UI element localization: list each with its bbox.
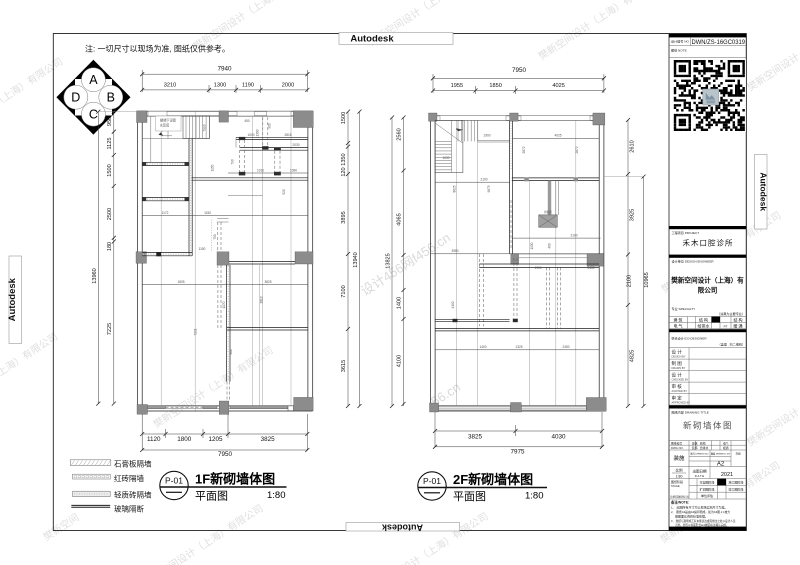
svg-text:1900: 1900	[483, 134, 490, 138]
svg-text:1900: 1900	[534, 266, 541, 270]
svg-text:设计单位 DESIGN ENGINEER: 设计单位 DESIGN ENGINEER	[672, 259, 715, 264]
svg-text:做图面比例的标准依据。: 做图面比例的标准依据。	[675, 514, 708, 519]
svg-text:2、 图纸A3是由A2缩印而成。如为A3图,1:1放大: 2、 图纸A3是由A2缩印而成。如为A3图,1:1放大	[671, 510, 730, 514]
svg-text:设计编号 NO: 设计编号 NO	[671, 39, 689, 44]
svg-text:AUDITED BY: AUDITED BY	[672, 389, 688, 393]
svg-text:1125: 1125	[107, 137, 113, 149]
svg-text:DESIGN BY: DESIGN BY	[672, 355, 686, 359]
svg-text:950: 950	[107, 117, 113, 126]
svg-text:联合设计/CO-DESIGNER: 联合设计/CO-DESIGNER	[672, 336, 708, 341]
svg-text:出图日期: 出图日期	[693, 469, 707, 474]
svg-text:180: 180	[107, 242, 113, 251]
svg-text:1955: 1955	[451, 83, 463, 89]
svg-text:4025: 4025	[552, 83, 564, 89]
svg-text:给排水: 给排水	[700, 446, 709, 450]
svg-text:1205: 1205	[208, 436, 223, 443]
svg-text:1:80: 1:80	[267, 490, 286, 501]
svg-text:1500: 1500	[341, 112, 347, 124]
svg-text:2100: 2100	[570, 233, 577, 237]
svg-text:A2: A2	[717, 461, 725, 467]
svg-text:DRAWN BY: DRAWN BY	[672, 366, 686, 370]
svg-text:13940: 13940	[353, 252, 359, 268]
svg-text:7221: 7221	[194, 328, 198, 335]
svg-text:1805: 1805	[177, 280, 184, 284]
svg-text:2021: 2021	[721, 472, 733, 478]
svg-text:装施: 装施	[673, 454, 685, 462]
svg-text:DWN/ZS-16GC0319: DWN/ZS-16GC0319	[692, 39, 746, 46]
svg-text:1130: 1130	[530, 242, 534, 249]
svg-text:1150: 1150	[204, 211, 211, 215]
svg-text:电 气: 电 气	[673, 322, 682, 328]
svg-text:红砖隔墙: 红砖隔墙	[114, 473, 144, 483]
svg-text:图纸 NOTE: 图纸 NOTE	[671, 48, 687, 53]
svg-text:1150: 1150	[199, 247, 206, 251]
svg-text:新砌墙体图: 新砌墙体图	[683, 421, 733, 431]
svg-text:限公司: 限公司	[698, 286, 718, 295]
svg-text:轻质砖隔墙: 轻质砖隔墙	[114, 489, 152, 499]
svg-text:CHECKED BY: CHECKED BY	[672, 378, 689, 382]
svg-text:B: B	[107, 91, 115, 105]
svg-text:Autodesk: Autodesk	[381, 523, 423, 533]
svg-text:1190: 1190	[242, 83, 254, 89]
svg-text:方案图阶段: 方案图阶段	[699, 480, 714, 485]
svg-text:比例: 比例	[676, 468, 684, 473]
svg-text:设 计: 设 计	[672, 372, 683, 379]
svg-text:2560: 2560	[397, 128, 403, 140]
svg-text:1:80: 1:80	[676, 475, 683, 479]
svg-text:960: 960	[229, 349, 233, 355]
svg-text:Autodesk: Autodesk	[7, 277, 18, 321]
svg-text:比例(见图内标注): 比例(见图内标注)	[671, 495, 690, 499]
svg-text:水泵房: 水泵房	[160, 123, 170, 128]
svg-text:1400: 1400	[397, 297, 403, 309]
svg-text:单位评估: 单位评估	[701, 493, 713, 498]
svg-text:2450: 2450	[587, 266, 594, 270]
svg-text:7950: 7950	[218, 451, 233, 458]
svg-text:1:80: 1:80	[525, 491, 544, 502]
svg-text:900: 900	[268, 123, 272, 129]
svg-text:P-01: P-01	[165, 476, 183, 486]
svg-text:4025: 4025	[554, 134, 561, 138]
svg-text:STAGE: STAGE	[671, 484, 680, 488]
svg-text:DWG NO.: DWG NO.	[671, 446, 684, 450]
svg-text:3925: 3925	[630, 209, 636, 221]
svg-text:暖通: 暖通	[723, 446, 729, 450]
svg-text:1300: 1300	[214, 83, 226, 89]
svg-text:玻璃隔断: 玻璃隔断	[114, 504, 144, 514]
svg-text:2030: 2030	[292, 143, 299, 147]
svg-text:7975: 7975	[510, 449, 525, 456]
svg-text:2000: 2000	[282, 83, 294, 89]
svg-text:D: D	[71, 91, 80, 105]
svg-text:2610: 2610	[630, 140, 636, 152]
svg-text:7100: 7100	[341, 285, 347, 297]
svg-text:7950: 7950	[512, 67, 527, 74]
svg-text:4065: 4065	[397, 213, 403, 225]
svg-text:C: C	[89, 108, 98, 122]
svg-text:13825: 13825	[385, 253, 391, 269]
svg-text:750: 750	[213, 234, 217, 240]
svg-text:暖 通: 暖 通	[733, 322, 742, 328]
svg-text:2500: 2500	[107, 208, 113, 220]
svg-text:1010: 1010	[257, 168, 264, 172]
svg-text:3825: 3825	[264, 280, 271, 284]
svg-text:备注/NOTE:: 备注/NOTE:	[670, 500, 689, 505]
svg-text:樊新空间设计（上海）有: 樊新空间设计（上海）有	[671, 276, 744, 285]
svg-text:790: 790	[231, 159, 235, 165]
svg-text:1170: 1170	[222, 301, 226, 308]
svg-text:审 核: 审 核	[672, 383, 683, 390]
svg-text:2450: 2450	[562, 345, 569, 349]
svg-text:施工图阶段: 施工图阶段	[728, 480, 743, 485]
svg-text:（涂黑为主要专业）: （涂黑为主要专业）	[717, 311, 745, 316]
svg-text:9675: 9675	[487, 185, 491, 192]
svg-text:400: 400	[548, 243, 552, 249]
svg-text:1172: 1172	[162, 211, 169, 215]
svg-text:7993: 7993	[203, 124, 207, 131]
svg-text:3825: 3825	[261, 436, 276, 443]
svg-text:审 定: 审 定	[672, 395, 683, 402]
svg-text:1325: 1325	[515, 345, 522, 349]
svg-text:8625: 8625	[453, 185, 457, 192]
svg-text:2818: 2818	[284, 133, 291, 137]
svg-text:制 图: 制 图	[672, 360, 683, 367]
svg-text:2100: 2100	[627, 275, 633, 287]
svg-text:3210: 3210	[164, 83, 176, 89]
svg-text:1500: 1500	[107, 164, 113, 176]
svg-text:楼梯下设置: 楼梯下设置	[160, 118, 176, 123]
svg-text:工程项目 PROJECT: 工程项目 PROJECT	[672, 230, 700, 235]
svg-text:450: 450	[244, 119, 250, 123]
svg-text:1800: 1800	[177, 436, 192, 443]
svg-text:为准。并形以书面形式and图面标注确认完成。: 为准。并形以书面形式and图面标注确认完成。	[675, 523, 729, 527]
svg-text:3813: 3813	[260, 296, 264, 303]
svg-text:图纸阶段: 图纸阶段	[671, 479, 683, 484]
svg-text:装饰: 装饰	[692, 446, 698, 450]
svg-text:1400: 1400	[479, 345, 486, 349]
svg-text:设 计: 设 计	[672, 349, 683, 356]
svg-text:3895: 3895	[341, 211, 347, 223]
svg-text:10965: 10965	[644, 272, 650, 288]
svg-text:3825: 3825	[468, 434, 483, 441]
svg-text:1150: 1150	[211, 164, 215, 171]
svg-text:1050: 1050	[442, 156, 449, 160]
svg-text:平面图: 平面图	[195, 490, 228, 503]
svg-text:电气: 电气	[723, 441, 729, 445]
svg-text:建筑: 建筑	[692, 441, 698, 445]
svg-text:给排水: 给排水	[698, 322, 710, 328]
svg-text:4030: 4030	[551, 434, 566, 441]
svg-text:建 筑: 建 筑	[673, 316, 682, 322]
svg-text:13960: 13960	[92, 268, 98, 284]
svg-text:3980: 3980	[451, 249, 458, 253]
svg-text:1120: 1120	[147, 436, 161, 443]
svg-text:7940: 7940	[217, 66, 232, 73]
svg-text:1850: 1850	[489, 83, 501, 89]
svg-text:平面图: 平面图	[453, 490, 486, 503]
svg-text:结 构: 结 构	[733, 316, 742, 322]
svg-text:1、 此图所有尺寸均以现场实测尺寸为准。: 1、 此图所有尺寸均以现场实测尺寸为准。	[671, 505, 728, 510]
svg-text:结 构: 结 构	[699, 316, 708, 322]
svg-text:日期: 日期	[735, 452, 741, 456]
svg-text:注: 一切尺寸以现场为准, 图纸仅供参考。: 注: 一切尺寸以现场为准, 图纸仅供参考。	[85, 44, 230, 54]
svg-text:扩初图阶段: 扩初图阶段	[699, 486, 714, 491]
svg-text:2872: 2872	[522, 146, 526, 153]
svg-text:APPROVED BY: APPROVED BY	[672, 401, 691, 405]
svg-text:PT: PT	[724, 324, 728, 328]
svg-text:结构: 结构	[700, 441, 706, 445]
svg-text:1000: 1000	[247, 133, 254, 137]
svg-text:3615: 3615	[341, 360, 347, 372]
svg-text:P-01: P-01	[423, 476, 441, 486]
svg-text:3、 图纸与现场施工有未能表达或需修改之处以设计人员: 3、 图纸与现场施工有未能表达或需修改之处以设计人员	[671, 519, 736, 523]
svg-text:图纸内容 DRAWING TITLE: 图纸内容 DRAWING TITLE	[672, 410, 709, 415]
svg-text:7225: 7225	[107, 323, 113, 335]
svg-text:（盖章 . 扫二维码）: （盖章 . 扫二维码）	[718, 342, 745, 347]
svg-text:1F新砌墙体图: 1F新砌墙体图	[195, 472, 275, 487]
svg-text:专业 SPECIALTY: 专业 SPECIALTY	[672, 306, 696, 311]
svg-text:1300: 1300	[256, 129, 260, 136]
svg-text:4825: 4825	[630, 350, 636, 362]
svg-text:2F新砌墙体图: 2F新砌墙体图	[453, 472, 533, 487]
svg-text:石膏板隔墙: 石膏板隔墙	[114, 458, 152, 468]
svg-text:禾木口腔诊所: 禾木口腔诊所	[683, 238, 734, 248]
svg-text:D A T E: D A T E	[695, 474, 705, 478]
svg-text:120 1350: 120 1350	[341, 153, 347, 176]
svg-text:A: A	[89, 73, 98, 87]
svg-text:2100: 2100	[480, 178, 487, 182]
svg-text:Autodesk: Autodesk	[350, 34, 394, 45]
svg-text:2872: 2872	[575, 146, 579, 153]
svg-text:520: 520	[282, 189, 286, 195]
svg-text:排烟道: 排烟道	[544, 210, 552, 214]
svg-text:1090: 1090	[290, 168, 297, 172]
svg-text:4190: 4190	[451, 301, 455, 308]
svg-text:Autodesk: Autodesk	[759, 172, 769, 211]
svg-text:竣工图阶段: 竣工图阶段	[728, 486, 743, 491]
svg-text:4100: 4100	[397, 355, 403, 367]
